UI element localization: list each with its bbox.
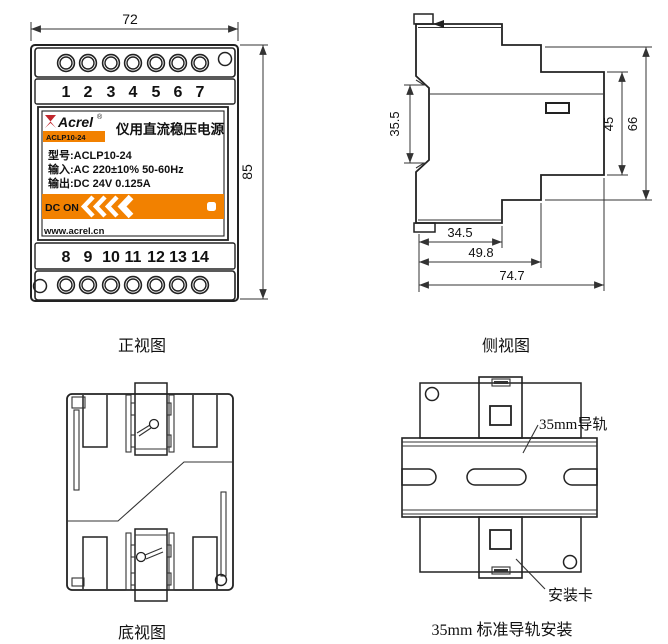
- terminal-number: 14: [191, 249, 209, 266]
- brand-name: Acrel: [57, 114, 94, 130]
- acrel-logo-icon: [45, 115, 56, 128]
- front-view-caption: 正视图: [118, 337, 166, 355]
- clip-latch-screw-top: [150, 420, 159, 429]
- terminal-number: 7: [196, 84, 205, 101]
- dim-width-label: 72: [122, 11, 138, 27]
- rail-leader: 35mm导轨: [523, 416, 607, 453]
- clip-hole-top: [490, 406, 511, 425]
- dim-74-7-label: 74.7: [499, 268, 524, 283]
- terminal-number: 2: [84, 84, 93, 101]
- terminal-number: 4: [129, 84, 138, 101]
- terminal-number: 9: [84, 249, 93, 266]
- dim-34-5-label: 34.5: [447, 225, 472, 240]
- terminal-number: 3: [107, 84, 116, 101]
- mount-clip-bottom: [479, 517, 522, 578]
- din-rail: [402, 438, 597, 517]
- side-dim-depths: 34.5 49.8 74.7: [419, 178, 604, 292]
- acrel-logo: Acrel ® ACLP10-24: [43, 113, 105, 142]
- drawing-svg: 72 85 1 2 3 4 5 6 7: [0, 0, 668, 644]
- side-view-caption: 侧视图: [482, 337, 530, 355]
- terminal-number: 13: [169, 249, 187, 266]
- dc-on-text: DC ON: [45, 202, 79, 214]
- spec-output: 输出:DC 24V 0.125A: [48, 176, 151, 190]
- spec-model: 型号:ACLP10-24: [48, 148, 133, 162]
- dc-on-band: DC ON: [42, 194, 224, 219]
- body-screw-hole-bottom: [564, 556, 577, 569]
- terminal-number: 10: [102, 249, 120, 266]
- terminal-number: 11: [125, 249, 142, 266]
- technical-drawing-sheet: 72 85 1 2 3 4 5 6 7: [0, 0, 668, 644]
- bottom-view-caption: 底视图: [118, 624, 166, 642]
- rail-slot-middle: [467, 469, 526, 485]
- side-profile: [416, 24, 604, 223]
- rail-mount-view: 35mm导轨 安装卡 35mm 标准导轨安装: [402, 377, 607, 639]
- terminal-number: 1: [62, 84, 71, 101]
- spec-lines: 型号:ACLP10-24 输入:AC 220±10% 50-60Hz 输出:DC…: [48, 148, 184, 190]
- product-title: 仪用直流稳压电源: [115, 121, 224, 137]
- clip-hole-bottom: [490, 530, 511, 549]
- body-screw-hole-top: [426, 388, 439, 401]
- side-dim-front-outer: 66: [545, 47, 652, 200]
- front-view: 72 85 1 2 3 4 5 6 7: [31, 11, 268, 355]
- top-terminal-block: [35, 48, 235, 77]
- rail-slot-right: [564, 469, 597, 485]
- clip-latch-screw-bottom: [137, 553, 146, 562]
- clip-label: 安装卡: [548, 587, 593, 604]
- side-view: 35.5 45 66 34.5 49.8 74.7: [387, 14, 652, 355]
- registered-mark: ®: [97, 113, 103, 121]
- case-split-line: [67, 462, 233, 521]
- rail-clip-tab-bottom: [414, 223, 435, 232]
- bottom-terminal-holes: [34, 277, 209, 294]
- top-terminal-numbers: 1 2 3 4 5 6 7: [62, 84, 205, 101]
- mount-ear-hole-top: [219, 53, 232, 66]
- led-indicator: [207, 202, 216, 211]
- clip-teeth: [416, 80, 424, 168]
- rail-label: 35mm导轨: [539, 416, 607, 433]
- bottom-view: 底视图: [67, 383, 233, 642]
- front-dim-height: 85: [239, 45, 268, 299]
- dim-height-label: 85: [239, 164, 255, 180]
- side-dim-clip-span: 35.5: [387, 85, 426, 163]
- terminal-number: 8: [62, 249, 71, 266]
- spec-input: 输入:AC 220±10% 50-60Hz: [48, 162, 184, 176]
- rail-view-caption: 35mm 标准导轨安装: [432, 621, 573, 639]
- vent-slot: [546, 103, 569, 113]
- bottom-terminal-block: [35, 271, 235, 300]
- dim-35-5-label: 35.5: [387, 111, 402, 136]
- model-badge-text: ACLP10-24: [46, 133, 86, 142]
- device-body-below-rail: [420, 517, 581, 572]
- website-text: www.acrel.cn: [43, 226, 105, 237]
- rail-slot-left: [402, 469, 436, 485]
- mount-clip-top: [479, 377, 522, 438]
- dim-45-label: 45: [601, 117, 616, 131]
- terminal-number: 12: [147, 249, 165, 266]
- terminal-number: 6: [174, 84, 183, 101]
- dim-66-label: 66: [625, 117, 640, 131]
- dim-49-8-label: 49.8: [468, 245, 493, 260]
- top-terminal-holes: [58, 53, 232, 72]
- rail-clip-tab-top: [414, 14, 433, 24]
- side-dim-front-inner: 45: [601, 72, 628, 175]
- bottom-terminal-numbers: 8 9 10 11 12 13 14: [62, 249, 209, 266]
- clip-arrow-mark: [433, 20, 444, 28]
- front-dim-width: 72: [31, 11, 238, 41]
- terminal-number: 5: [152, 84, 161, 101]
